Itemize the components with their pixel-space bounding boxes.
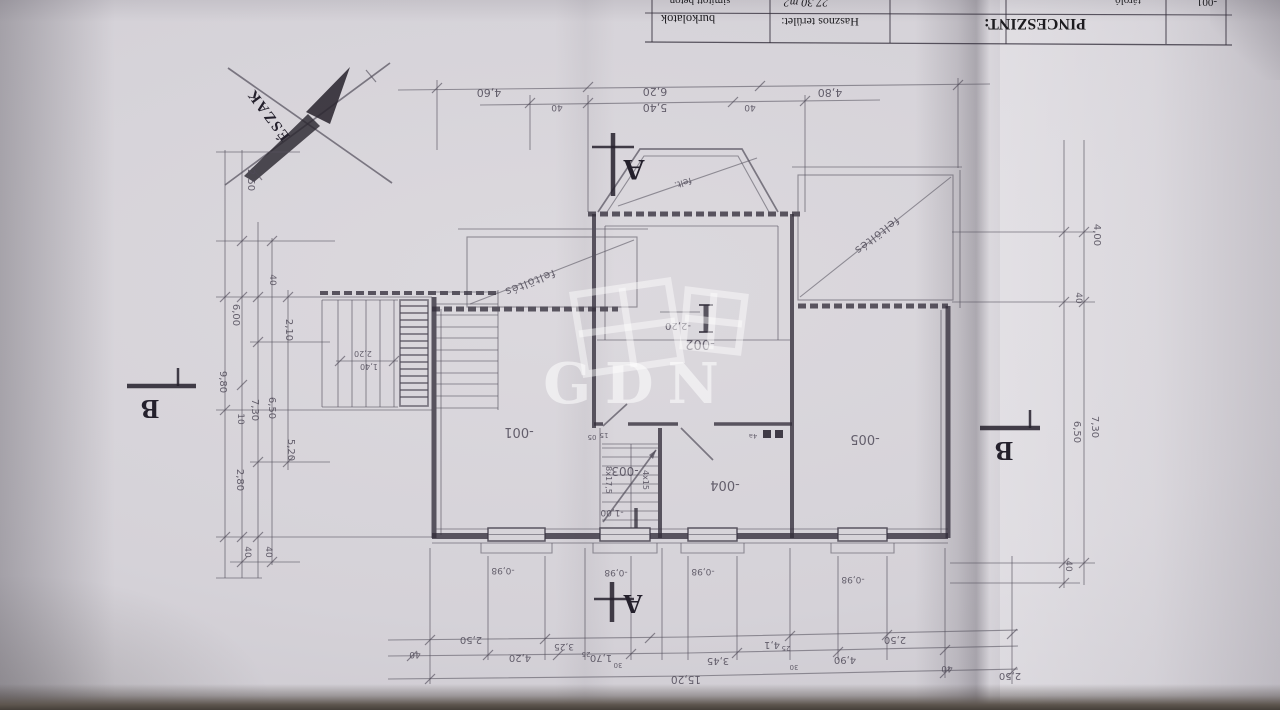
stair-dim-1: 2,20 [354, 349, 372, 358]
stair-ladder [400, 300, 428, 406]
dim-right-1: 4,00 [1091, 224, 1102, 246]
dim-left-10: 2,80 [234, 469, 245, 491]
dim-left-1: 2,50 [245, 169, 256, 191]
fill-area-right: feltöltés [792, 167, 962, 308]
dim-left-5: 9,80 [217, 371, 228, 393]
title-block-room-finish: simított beton [669, 0, 730, 7]
dim-bottom-11: 25 [782, 644, 791, 652]
dim-right-2: 40 [1073, 292, 1083, 304]
section-label-a-top: A [623, 153, 645, 186]
window-1 [481, 528, 552, 553]
dim-right-3: 7,30 [1089, 416, 1100, 438]
title-block: PINCESZINT: Hasznos terület: burkolatok … [645, 0, 1232, 45]
dimension-chain-right: 4,00 40 7,30 6,50 40 [950, 140, 1102, 588]
dim-top-1: 4,60 [477, 86, 502, 99]
section-marker-a-bottom: A [594, 582, 643, 622]
dim-left-4: 2,10 [283, 319, 294, 341]
stair-note-2: 4x15 [641, 470, 650, 490]
dim-bottom-14: 2,50 [884, 634, 906, 645]
stairwell: 8x17,5 4x15 05 15 [588, 431, 659, 535]
dim-left-6: 10 [235, 413, 245, 425]
dim-bottom-4: 1,70 [590, 652, 612, 663]
dim-top-3: 6,20 [643, 85, 668, 98]
window-4 [831, 528, 894, 553]
dim-right-4: 6,50 [1071, 421, 1082, 443]
section-label-b-left: B [141, 394, 159, 424]
dim-bottom-16: 2,50 [999, 670, 1021, 681]
room-label-003: -003 [611, 464, 638, 478]
dim-top-5: 40 [744, 102, 756, 112]
dim-left-3: 6,00 [230, 304, 241, 326]
dim-bottom-15: 40 [941, 663, 953, 673]
window-2 [593, 528, 657, 553]
lintel-mark-label: 4a [749, 432, 757, 440]
dim-top-6: 4,80 [818, 86, 843, 99]
title-block-room-name: tároló [1115, 0, 1141, 7]
title-block-title: PINCESZINT: [984, 15, 1086, 32]
dim-left-12: 40 [263, 546, 273, 558]
dim-bottom-1: 2,50 [460, 634, 482, 645]
section-marker-b-right: B [980, 410, 1040, 466]
section-label-b-right: B [995, 436, 1013, 466]
dim-bottom-6: 40 [409, 649, 421, 659]
dim-left-7: 7,30 [249, 399, 260, 421]
title-block-room-number: -001 [1197, 0, 1217, 8]
floorplan-photo: PINCESZINT: Hasznos terület: burkolatok … [0, 0, 1280, 710]
section-marker-a-top: A [592, 133, 645, 196]
north-arrow-head [306, 67, 350, 124]
watermark-text: GDN [543, 351, 733, 417]
dim-left-9: 5,20 [285, 439, 296, 461]
dim-bottom-10: 4,1 [764, 639, 780, 650]
stair-note-3: 05 [588, 433, 597, 441]
fill-label-left: feltöltés [503, 266, 558, 298]
title-block-finishes-header: burkolatok [660, 12, 715, 26]
section-marker-b-left: B [127, 368, 196, 424]
fill-area-left: feltöltés [458, 229, 648, 307]
north-label: ÉSZAK [243, 85, 293, 144]
level-mark-stair: -1,00 [600, 507, 624, 517]
dim-left-11: 40 [242, 546, 252, 558]
title-block-area-header: Hasznos terület: [781, 15, 859, 29]
dim-left-2: 40 [267, 274, 277, 286]
watermark: GDN [543, 281, 745, 417]
dim-bottom-2: 3,25 [554, 641, 574, 651]
dim-top-4: 5,40 [643, 101, 668, 114]
room-label-001: -001 [504, 424, 534, 439]
dim-right-5: 40 [1063, 560, 1073, 572]
dim-bottom-5: 30 [614, 661, 623, 669]
dim-bottom-12: 4,90 [834, 654, 856, 665]
dim-left-8: 6,50 [266, 397, 277, 419]
dim-bottom-3: 25 [582, 650, 591, 658]
room-label-004: -004 [710, 477, 740, 492]
room-label-005: -005 [850, 431, 880, 446]
window-1-label: -0,98 [491, 565, 515, 575]
window-2-label: -0,98 [604, 567, 628, 577]
dim-top-2: 40 [551, 102, 563, 112]
stair-dim-2: 1,40 [360, 362, 378, 371]
dim-bottom-9: 3,45 [707, 655, 729, 666]
north-arrow: ÉSZAK [225, 63, 392, 185]
section-label-a-bottom: A [623, 589, 643, 619]
window-4-label: -0,98 [841, 574, 865, 584]
lintel-marks: 4a [749, 430, 783, 440]
dim-bottom-7: 4,20 [509, 652, 531, 663]
dim-bottom-8: 15,20 [671, 673, 701, 685]
stair-note-4: 15 [600, 431, 609, 439]
dimension-chain-top: 4,60 40 6,20 5,40 40 4,80 [398, 78, 990, 212]
bay-fill-label: felt. [673, 175, 693, 190]
window-3 [681, 528, 744, 553]
dim-bottom-13: 30 [790, 663, 799, 671]
window-3-label: -0,98 [691, 566, 715, 576]
title-block-room-area: 27,30 m2 [784, 0, 829, 10]
fill-label-right: feltöltés [852, 214, 902, 257]
